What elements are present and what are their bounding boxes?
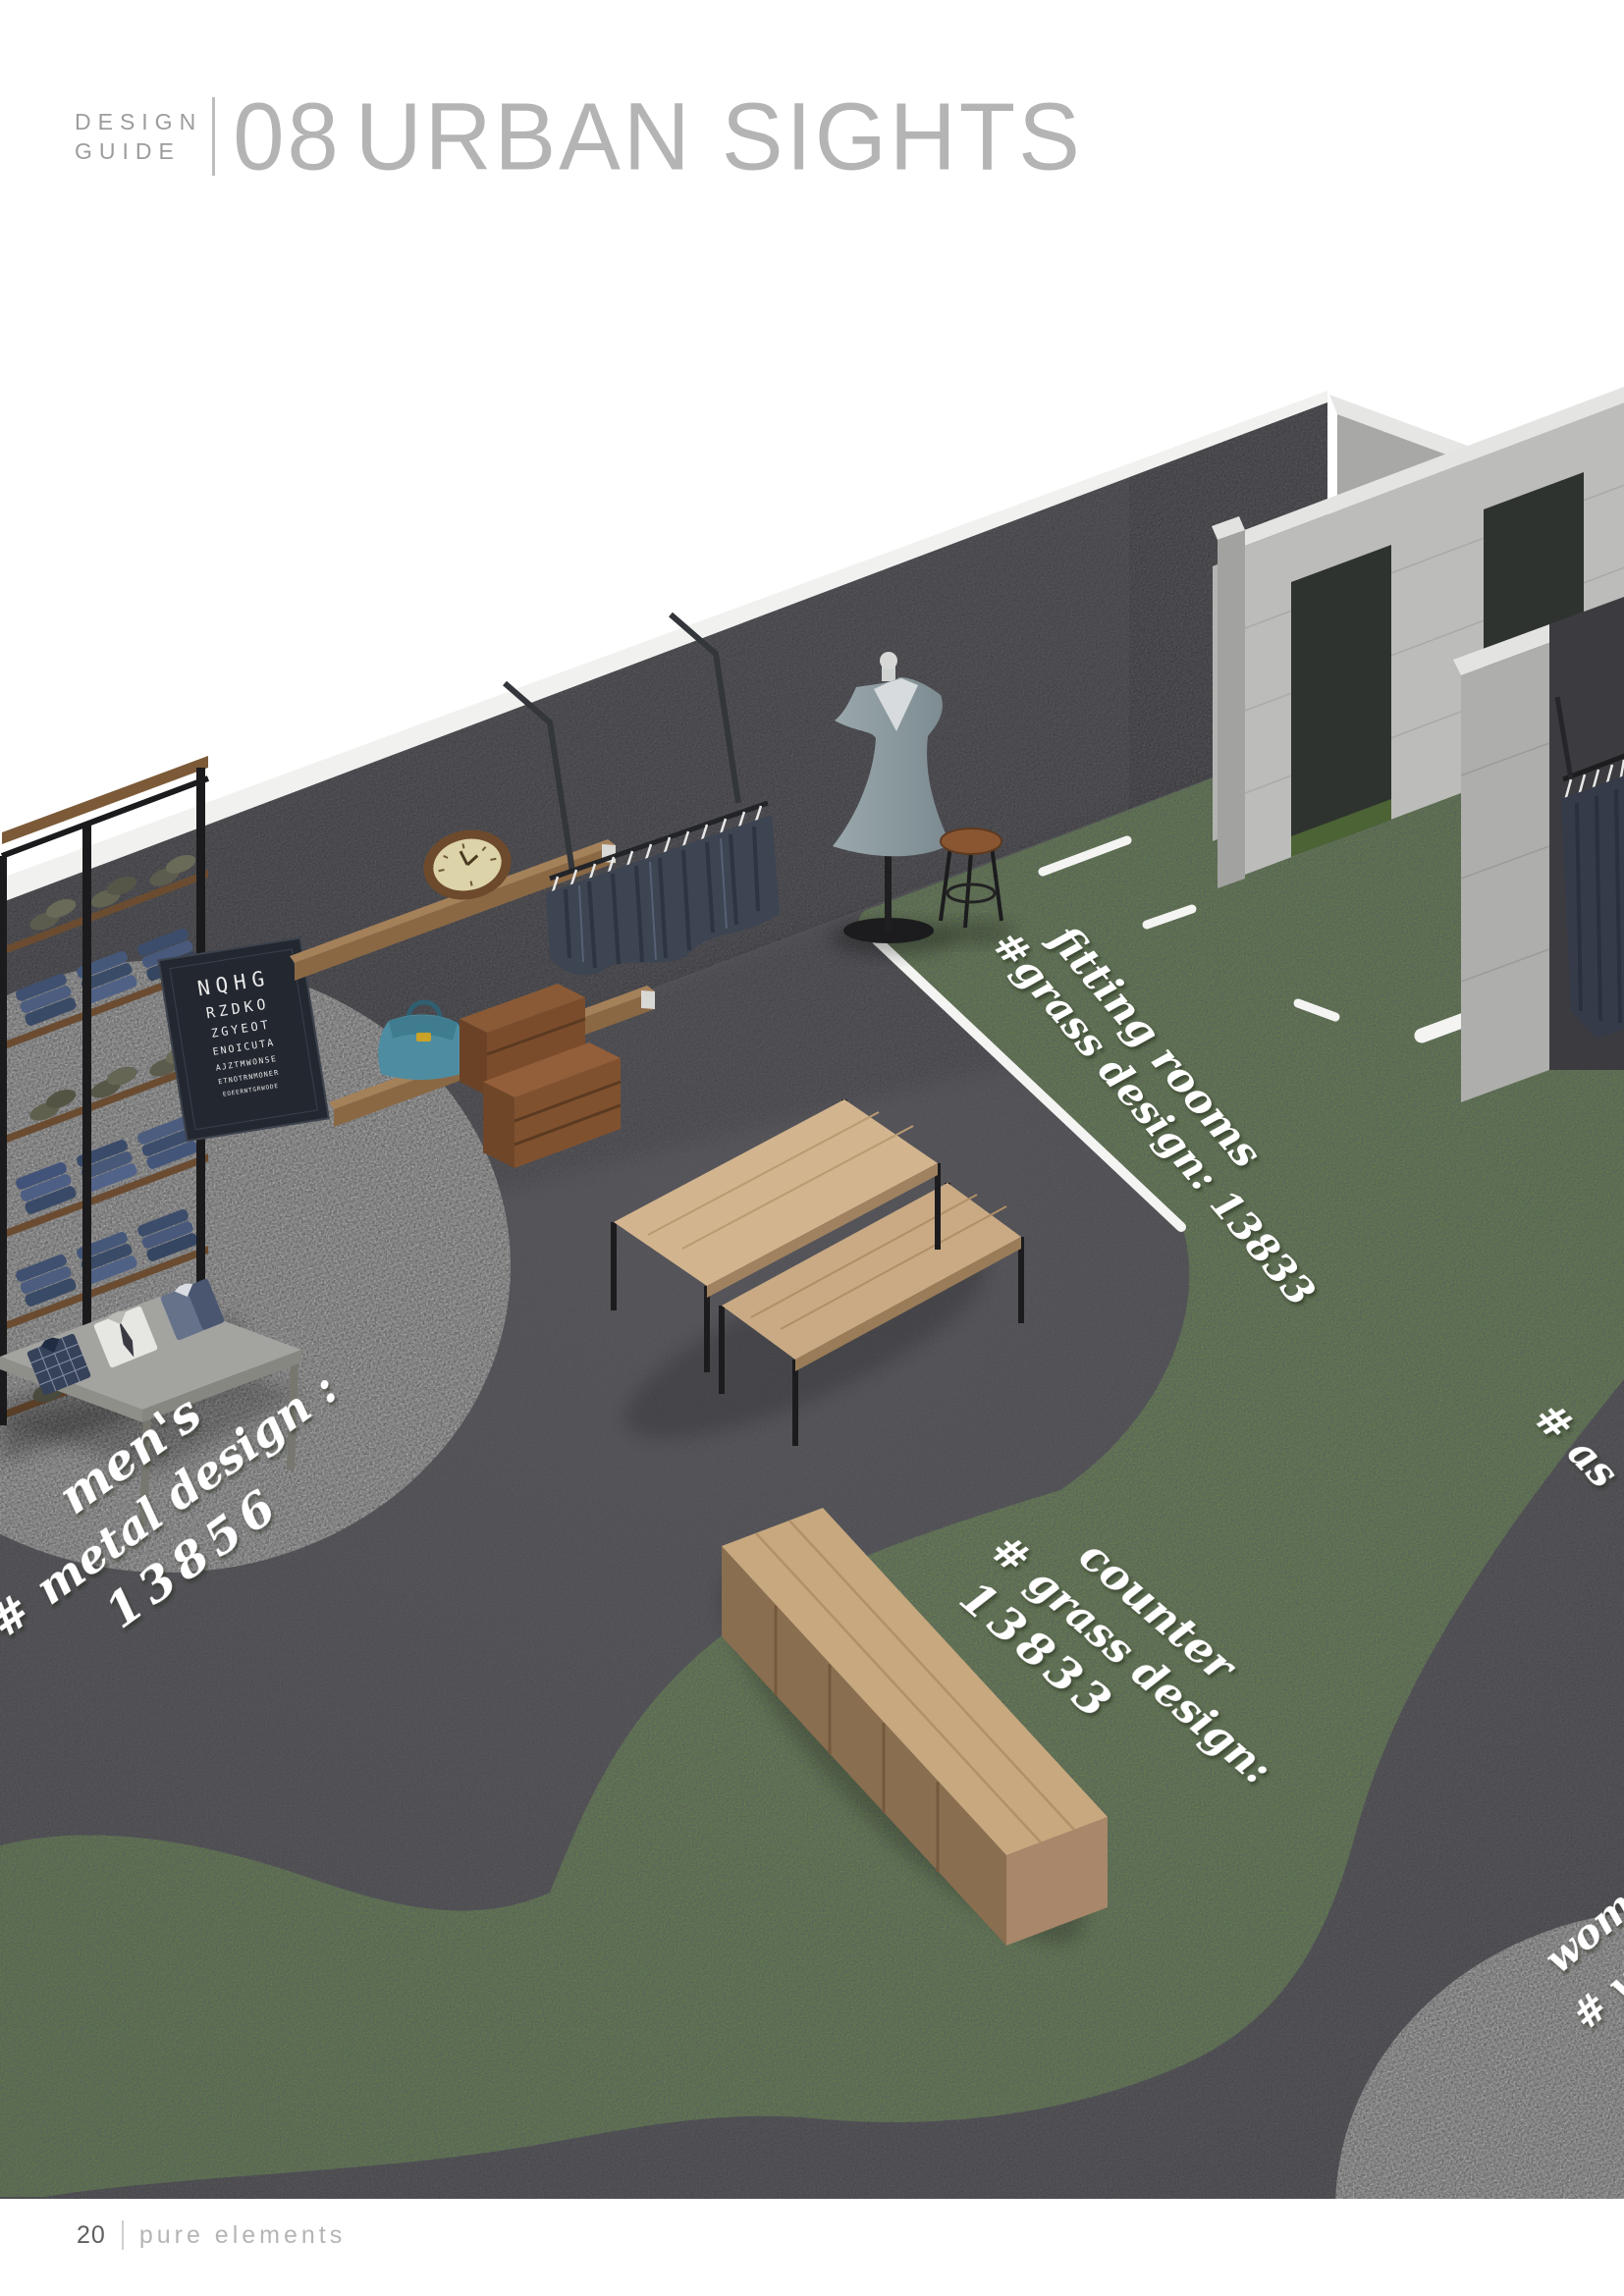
kicker-line1: DESIGN <box>75 107 202 136</box>
footer-brand: pure elements <box>139 2221 346 2250</box>
page-title: 08URBAN SIGHTS <box>233 88 1083 185</box>
kicker-line2: GUIDE <box>75 136 202 166</box>
page-header: DESIGN GUIDE 08URBAN SIGHTS <box>75 90 1083 183</box>
header-divider <box>212 97 215 176</box>
footer-divider <box>122 2220 124 2250</box>
header-kicker: DESIGN GUIDE <box>75 107 202 166</box>
chapter-number: 08 <box>233 82 342 189</box>
page-footer: 20 pure elements <box>77 2220 346 2250</box>
chapter-title: URBAN SIGHTS <box>355 82 1083 189</box>
store-render: NQHG RZDKO ZGYEOT ENOICUTA AJZTMWONSE ET… <box>0 383 1624 2199</box>
page-number: 20 <box>77 2221 106 2250</box>
